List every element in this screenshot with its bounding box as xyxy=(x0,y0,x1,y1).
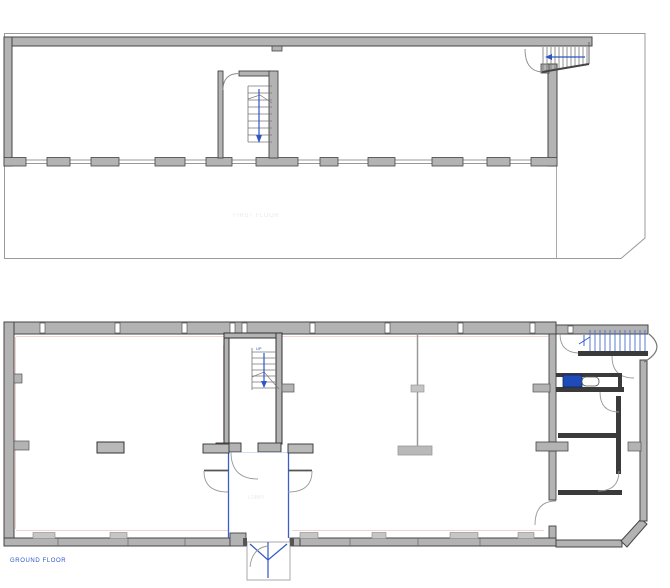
window-gap xyxy=(530,323,535,333)
stairwell-left-wall xyxy=(218,71,223,158)
window-gap xyxy=(568,326,573,333)
window-gap xyxy=(310,323,315,333)
wc-cistern xyxy=(563,375,582,387)
lobby-wall-block xyxy=(288,444,313,453)
ff-wall-notch xyxy=(272,46,282,51)
wc-end-wall xyxy=(618,373,622,392)
gf-bottom-wall-right xyxy=(300,538,556,546)
partition-base xyxy=(398,446,432,455)
wc-bowl xyxy=(582,377,599,386)
sill xyxy=(300,533,318,539)
gf-top-wall xyxy=(4,322,556,334)
lobby-wall-block xyxy=(203,444,229,453)
pier xyxy=(91,158,119,167)
ff-left-wall xyxy=(4,37,12,166)
stairwell-left-wall xyxy=(224,333,229,444)
pier xyxy=(320,158,338,167)
window-gap xyxy=(385,323,390,333)
divider-wall xyxy=(549,526,556,538)
room-wall xyxy=(558,490,622,495)
sill xyxy=(372,533,386,539)
entrance-vestibule xyxy=(243,538,294,580)
stairwell-top-wall xyxy=(239,71,270,76)
pier xyxy=(487,158,510,167)
stair-hall-wall xyxy=(578,351,648,356)
window-gap xyxy=(230,323,235,333)
pier xyxy=(4,158,26,167)
stairwell-right-wall xyxy=(269,71,278,158)
sill xyxy=(450,533,478,539)
floorplan-drawing: FIRST FLOOR xyxy=(0,0,670,588)
wall-stub xyxy=(282,384,294,392)
wall-stub xyxy=(628,442,641,451)
wall-stub xyxy=(533,384,550,392)
ff-top-wall xyxy=(4,37,592,46)
window-gap xyxy=(458,323,463,333)
stairwell-bottom-block xyxy=(258,443,281,452)
paper-background xyxy=(0,0,670,588)
gf-right-wall xyxy=(640,360,647,521)
pier xyxy=(368,158,395,167)
partition-pier xyxy=(411,385,424,392)
pier xyxy=(256,158,298,167)
window-gap xyxy=(40,323,45,333)
sill xyxy=(518,533,534,539)
gf-bottom-wall-left xyxy=(4,538,230,546)
room-wall xyxy=(616,396,621,474)
stairwell-top-wall xyxy=(224,333,281,338)
window-gap xyxy=(182,323,187,333)
first-floor-faint-label: FIRST FLOOR xyxy=(233,213,279,219)
pier xyxy=(155,158,185,167)
wall-stub xyxy=(536,442,568,451)
room-wall xyxy=(558,433,621,438)
wall-stub xyxy=(14,441,29,450)
sill xyxy=(33,533,55,539)
sill xyxy=(110,533,127,539)
gf-left-wall xyxy=(4,322,14,546)
pier xyxy=(531,158,557,167)
door-jamb xyxy=(290,538,294,546)
floorplan-canvas: FIRST FLOOR xyxy=(0,0,670,588)
ff-right-wall xyxy=(548,64,557,166)
ground-floor-label: GROUND FLOOR xyxy=(10,558,66,564)
pier xyxy=(432,158,463,167)
pier xyxy=(47,158,70,167)
hall-fixture xyxy=(97,442,124,453)
lobby-faint-label: LOBBY xyxy=(248,495,265,501)
gf-bottom-wall-bay xyxy=(556,540,622,547)
window-gap xyxy=(115,323,120,333)
stair-up-label: UP xyxy=(256,346,262,351)
pier xyxy=(206,158,232,167)
window-gap xyxy=(242,323,247,333)
wc-bottom-wall xyxy=(556,387,624,392)
divider-wall xyxy=(549,451,556,500)
door-jamb xyxy=(243,538,247,546)
wall-stub xyxy=(14,374,22,383)
